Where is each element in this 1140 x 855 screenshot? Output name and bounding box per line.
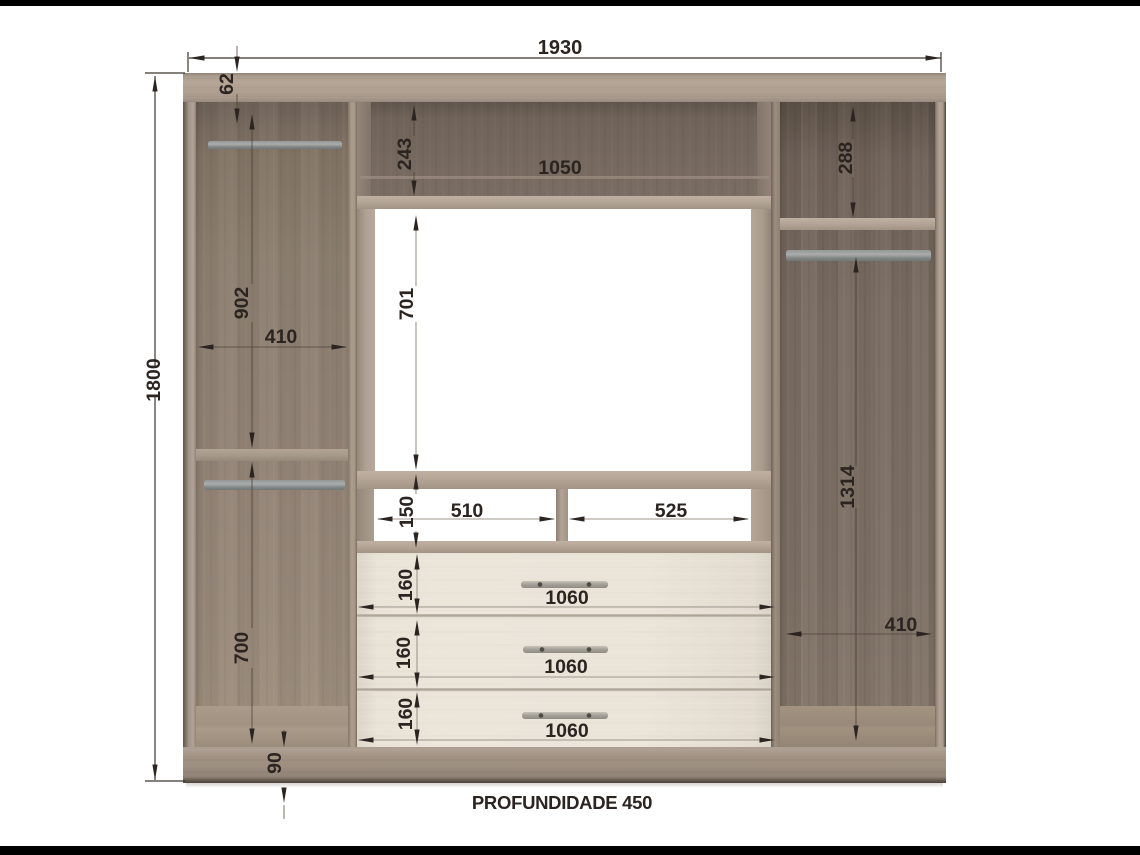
svg-text:1060: 1060 [545,587,589,609]
svg-text:150: 150 [396,496,418,529]
svg-text:701: 701 [396,288,418,321]
svg-text:PROFUNDIDADE 450: PROFUNDIDADE 450 [472,792,652,813]
svg-text:1050: 1050 [538,157,582,179]
svg-text:90: 90 [264,752,286,774]
svg-text:902: 902 [231,287,253,320]
svg-text:160: 160 [395,698,417,731]
svg-text:410: 410 [885,614,918,636]
svg-text:510: 510 [451,500,484,522]
svg-text:700: 700 [231,632,253,665]
svg-text:288: 288 [835,142,857,175]
svg-text:525: 525 [655,500,688,522]
svg-text:1800: 1800 [143,358,165,402]
svg-text:160: 160 [395,569,417,602]
svg-text:62: 62 [216,73,238,95]
svg-text:1314: 1314 [837,465,859,509]
svg-text:1060: 1060 [544,656,588,678]
svg-text:243: 243 [394,138,416,171]
svg-text:160: 160 [393,637,415,670]
svg-text:1930: 1930 [538,37,583,59]
svg-text:1060: 1060 [545,720,589,742]
svg-text:410: 410 [265,326,298,348]
